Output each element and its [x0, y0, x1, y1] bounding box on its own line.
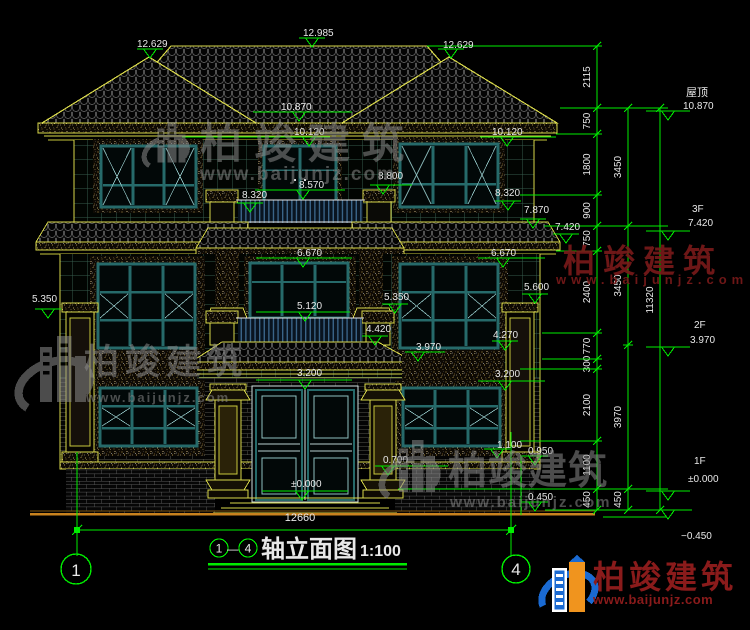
svg-text:3.200: 3.200: [495, 369, 520, 380]
svg-text:4.270: 4.270: [493, 330, 518, 341]
svg-text:www.baijunjz.com: www.baijunjz.com: [449, 494, 611, 511]
svg-text:www.baijunjz.com: www.baijunjz.com: [85, 390, 230, 405]
svg-text:屋顶: 屋顶: [686, 86, 708, 99]
svg-text:2F: 2F: [694, 320, 706, 331]
svg-text:−0.450: −0.450: [681, 531, 712, 542]
svg-text:2100: 2100: [582, 393, 593, 416]
svg-text:4: 4: [245, 542, 252, 556]
svg-text:11320: 11320: [645, 286, 656, 314]
svg-text:12660: 12660: [285, 512, 316, 524]
svg-text:1F: 1F: [694, 456, 706, 467]
svg-text:900: 900: [582, 202, 593, 219]
svg-text:7.420: 7.420: [688, 218, 713, 229]
svg-text:3.970: 3.970: [416, 342, 441, 353]
svg-text:1: 1: [216, 542, 223, 556]
svg-text:1:100: 1:100: [360, 543, 401, 560]
svg-text:3.970: 3.970: [690, 335, 715, 346]
svg-text:www.baijunjz.com: www.baijunjz.com: [592, 592, 713, 607]
svg-text:2115: 2115: [582, 66, 593, 88]
svg-text:750: 750: [582, 112, 593, 129]
svg-text:—: —: [227, 542, 239, 556]
svg-text:8.320: 8.320: [242, 190, 267, 201]
svg-text:1800: 1800: [582, 153, 593, 176]
svg-text:7.870: 7.870: [524, 205, 549, 216]
svg-text:3970: 3970: [613, 405, 624, 428]
svg-text:5.120: 5.120: [297, 301, 322, 312]
svg-text:柏竣建筑: 柏竣建筑: [84, 342, 248, 382]
svg-text:12.629: 12.629: [443, 40, 474, 51]
svg-text:10.120: 10.120: [492, 127, 523, 138]
svg-text:3F: 3F: [692, 204, 704, 215]
svg-text:±0.000: ±0.000: [688, 474, 719, 485]
svg-text:1: 1: [71, 561, 80, 580]
svg-text:柏竣建筑: 柏竣建筑: [200, 120, 416, 167]
svg-text:10.870: 10.870: [683, 101, 714, 112]
svg-text:12.985: 12.985: [303, 28, 334, 39]
svg-text:4.420: 4.420: [366, 324, 391, 335]
svg-text:5.350: 5.350: [32, 294, 57, 305]
svg-text:7.420: 7.420: [555, 222, 580, 233]
svg-text:10.870: 10.870: [281, 102, 312, 113]
svg-text:8.320: 8.320: [495, 188, 520, 199]
svg-text:3450: 3450: [613, 155, 624, 178]
svg-text:300: 300: [582, 355, 593, 372]
svg-text:6.670: 6.670: [297, 248, 322, 259]
svg-text:3.200: 3.200: [297, 368, 322, 379]
svg-text:12.629: 12.629: [137, 39, 168, 50]
svg-text:www.baijunjz.com: www.baijunjz.com: [555, 272, 748, 287]
svg-text:轴立面图: 轴立面图: [261, 535, 357, 563]
svg-text:www.baijunjz.com: www.baijunjz.com: [199, 164, 396, 185]
svg-text:770: 770: [582, 337, 593, 354]
svg-text:5.350: 5.350: [384, 292, 409, 303]
svg-text:柏竣建筑: 柏竣建筑: [593, 559, 737, 595]
svg-text:柏竣建筑: 柏竣建筑: [448, 450, 608, 493]
svg-text:450: 450: [613, 491, 624, 508]
svg-text:5.600: 5.600: [524, 282, 549, 293]
svg-text:6.670: 6.670: [491, 248, 516, 259]
svg-text:4: 4: [511, 560, 520, 579]
svg-text:±0.000: ±0.000: [291, 479, 322, 490]
